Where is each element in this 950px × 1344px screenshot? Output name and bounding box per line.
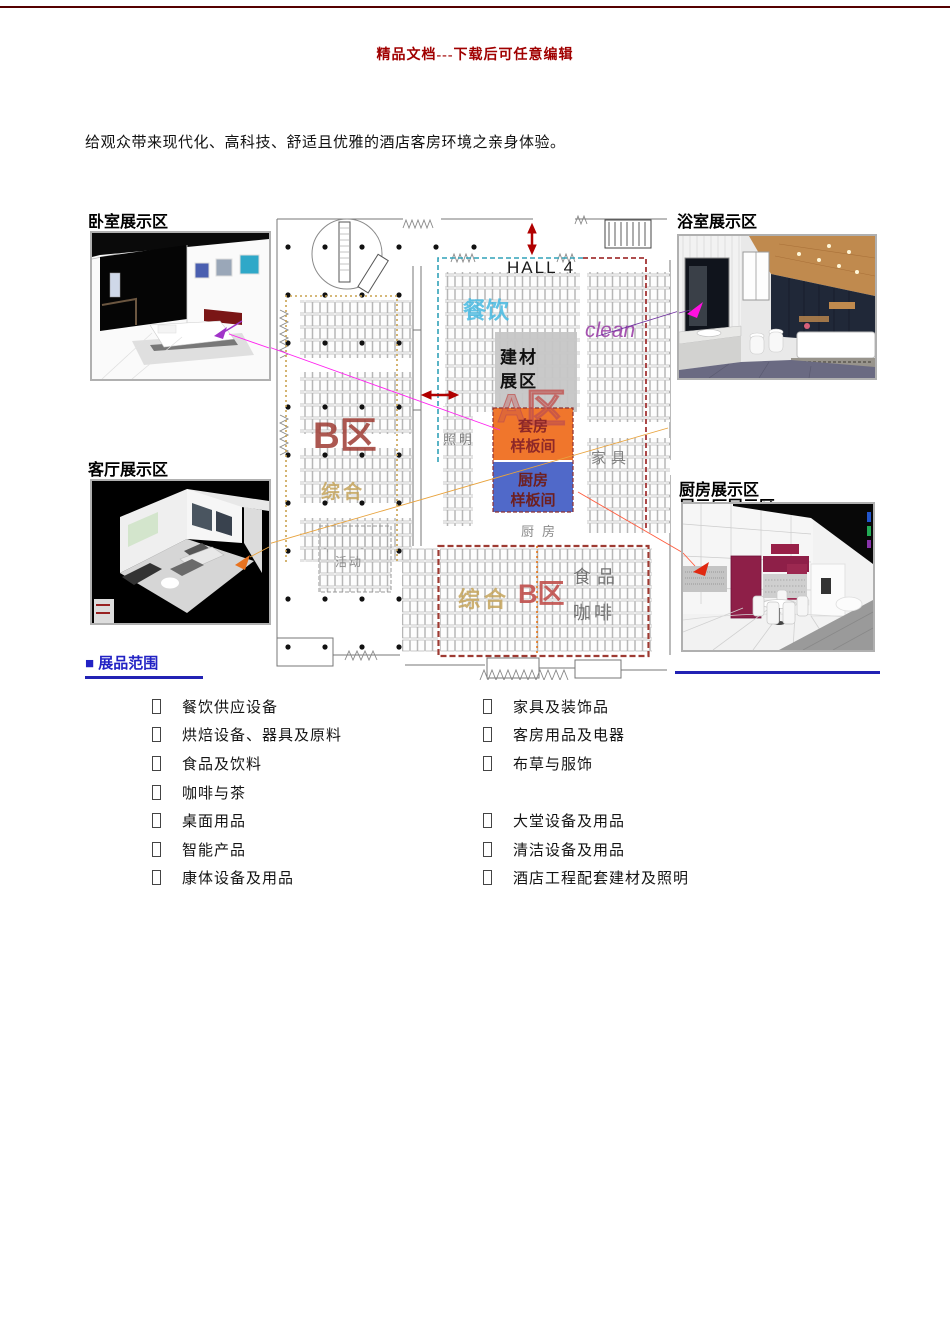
kitchen-photo <box>681 502 875 652</box>
exhibit-list-right: 家具及装饰品 客房用品及电器 布草与服饰 大堂设备及用品 清洁设备及用品 酒店工… <box>483 692 689 892</box>
list-item-row: 餐饮供应设备 <box>152 692 342 721</box>
page-top-rule <box>0 6 950 8</box>
list-item-row: 烘焙设备、器具及原料 <box>152 721 342 750</box>
zone-label-general-lower: 综合 <box>458 587 510 612</box>
kitchen-model-label-2: 样板间 <box>510 491 555 509</box>
intro-paragraph: 给观众带来现代化、高科技、舒适且优雅的酒店客房环境之亲身体验。 <box>85 131 885 152</box>
list-bullet <box>152 870 161 885</box>
floor-plan-drawing: HALL 4 餐饮 clean 建材 展区 A区 套房 样板间 厨房 样板间 照… <box>275 210 675 680</box>
suite-model-label-2: 样板间 <box>510 437 555 455</box>
exhibit-list-left: 餐饮供应设备 烘焙设备、器具及原料 食品及饮料 咖啡与茶 桌面用品 智能产品 康… <box>152 692 342 892</box>
list-item-row: 大堂设备及用品 <box>483 806 689 835</box>
list-item-text: 智能产品 <box>182 839 246 860</box>
bathroom-photo <box>677 234 877 380</box>
list-bullet <box>483 813 492 828</box>
list-item-text: 桌面用品 <box>182 810 246 831</box>
list-item-text: 食品及饮料 <box>182 753 262 774</box>
list-item-row: 酒店工程配套建材及照明 <box>483 864 689 893</box>
list-bullet <box>483 756 492 771</box>
zone-label-furniture: 家具 <box>591 450 631 467</box>
list-bullet <box>152 727 161 742</box>
zone-label-coffee: 咖啡 <box>573 603 615 623</box>
stool-2 <box>769 332 783 352</box>
wall-art-1 <box>195 263 209 278</box>
list-item-text: 酒店工程配套建材及照明 <box>513 867 689 888</box>
list-item-row: 清洁设备及用品 <box>483 835 689 864</box>
list-bullet <box>152 813 161 828</box>
list-bullet <box>483 727 492 742</box>
zone-label-kitchen: 厨房 <box>521 524 563 539</box>
living-room-photo <box>90 479 271 625</box>
wall-art-2 <box>216 259 232 276</box>
list-item-text: 烘焙设备、器具及原料 <box>182 724 342 745</box>
list-item-text: 家具及装饰品 <box>513 696 609 717</box>
list-bullet <box>483 870 492 885</box>
list-item-text: 清洁设备及用品 <box>513 839 625 860</box>
document-page: 精品文档---下载后可任意编辑 给观众带来现代化、高科技、舒适且优雅的酒店客房环… <box>0 0 950 1344</box>
list-item-row: 桌面用品 <box>152 806 342 835</box>
list-item-row: 咖啡与茶 <box>152 778 342 807</box>
document-header-text: 精品文档---下载后可任意编辑 <box>0 44 950 64</box>
round-ottoman <box>161 578 179 589</box>
list-item-row: 食品及饮料 <box>152 749 342 778</box>
list-item-row: 康体设备及用品 <box>152 864 342 893</box>
bedroom-area-label: 卧室展示区 <box>88 208 168 232</box>
bedroom-photo <box>90 231 271 381</box>
list-bullet <box>152 785 161 800</box>
list-bullet <box>483 699 492 714</box>
living-area-label: 客厅展示区 <box>88 456 168 480</box>
list-item-text: 餐饮供应设备 <box>182 696 278 717</box>
list-item-text: 客房用品及电器 <box>513 724 625 745</box>
list-item-row: 布草与服饰 <box>483 749 689 778</box>
sink <box>697 330 721 337</box>
section-title: ■ 展品范围 <box>85 652 203 679</box>
list-item-row: 智能产品 <box>152 835 342 864</box>
list-bullet <box>152 756 161 771</box>
list-gap <box>483 778 689 807</box>
stool-1 <box>750 336 764 354</box>
hall-title: HALL 4 <box>507 258 575 277</box>
white-sofa <box>836 597 862 611</box>
list-item-text: 咖啡与茶 <box>182 782 246 803</box>
list-item-text: 大堂设备及用品 <box>513 810 625 831</box>
zone-label-b-upper: B区 <box>313 415 377 456</box>
floor-plan: HALL 4 餐饮 clean 建材 展区 A区 套房 样板间 厨房 样板间 照… <box>275 210 675 680</box>
zone-label-general-upper: 综合 <box>321 480 365 503</box>
zone-label-building-material-1: 建材 <box>500 347 538 367</box>
kitchen-area-label-clipped: 展示厅展示区 <box>679 493 859 502</box>
list-bullet <box>152 842 161 857</box>
zone-label-b-lower: B区 <box>518 579 565 609</box>
bathroom-area-label: 浴室展示区 <box>677 208 757 232</box>
zone-label-catering: 餐饮 <box>463 297 510 323</box>
zone-label-clean: clean <box>585 319 635 342</box>
kitchen-model-label-1: 厨房 <box>518 471 548 489</box>
list-bullet <box>152 699 161 714</box>
list-item-row: 家具及装饰品 <box>483 692 689 721</box>
zone-label-lighting: 照明 <box>443 432 475 447</box>
wall-art-3 <box>240 255 259 274</box>
list-item-text: 布草与服饰 <box>513 753 593 774</box>
list-bullet <box>483 842 492 857</box>
suite-model-label-1: 套房 <box>517 417 548 435</box>
list-item-row: 客房用品及电器 <box>483 721 689 750</box>
zone-label-food: 食品 <box>573 567 621 587</box>
zone-label-activity: 活动 <box>335 555 363 569</box>
list-item-text: 康体设备及用品 <box>182 867 294 888</box>
bathtub <box>797 332 875 358</box>
